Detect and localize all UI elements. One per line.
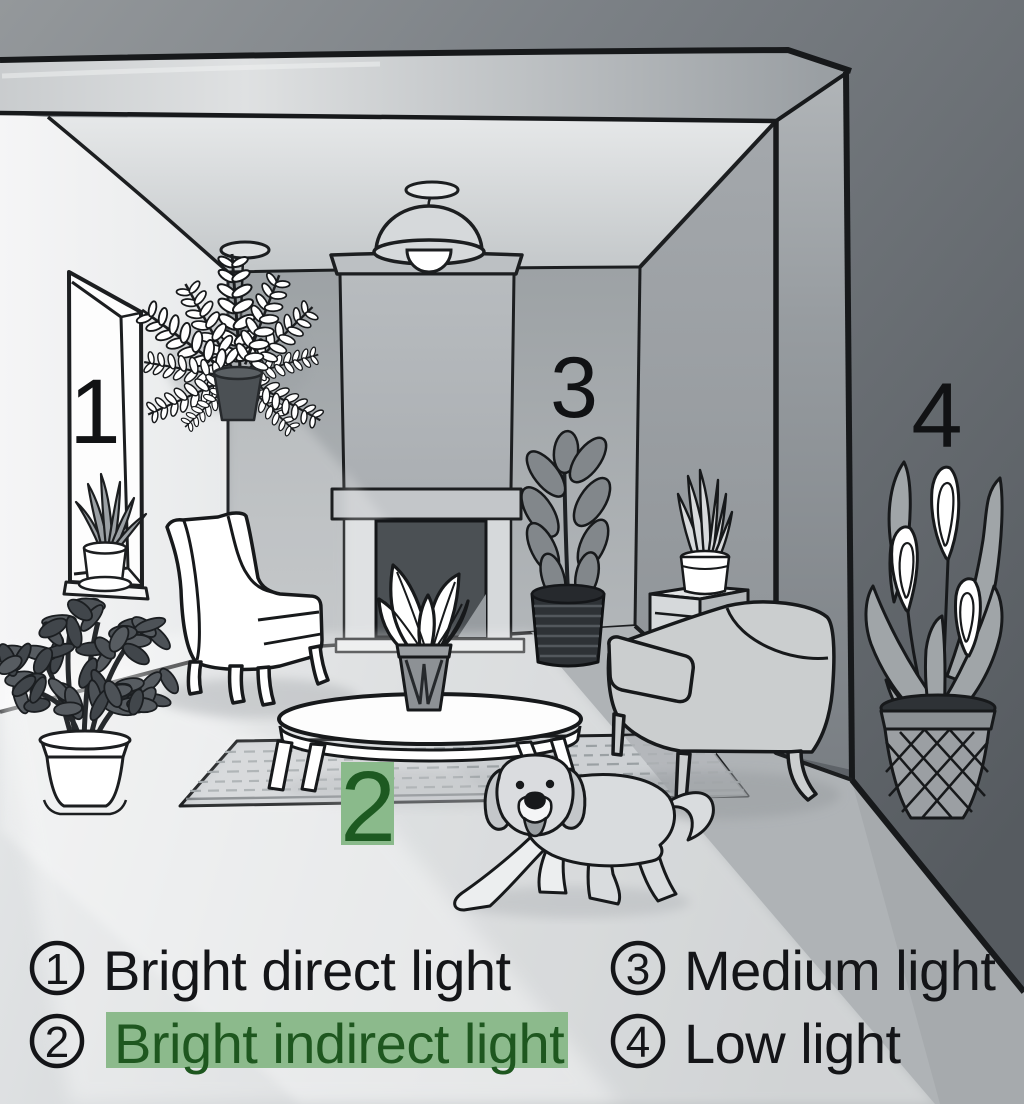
svg-text:Medium light: Medium light: [684, 939, 996, 1002]
svg-text:Low light: Low light: [684, 1012, 901, 1075]
svg-text:Bright indirect light: Bright indirect light: [114, 1012, 565, 1075]
svg-text:3: 3: [550, 340, 598, 436]
svg-text:Bright direct light: Bright direct light: [103, 939, 512, 1002]
svg-text:2: 2: [45, 1018, 69, 1067]
svg-text:4: 4: [911, 365, 962, 467]
svg-text:1: 1: [69, 361, 120, 463]
svg-text:2: 2: [340, 751, 396, 863]
svg-text:4: 4: [626, 1018, 650, 1067]
svg-text:3: 3: [626, 945, 650, 994]
svg-text:1: 1: [45, 945, 69, 994]
